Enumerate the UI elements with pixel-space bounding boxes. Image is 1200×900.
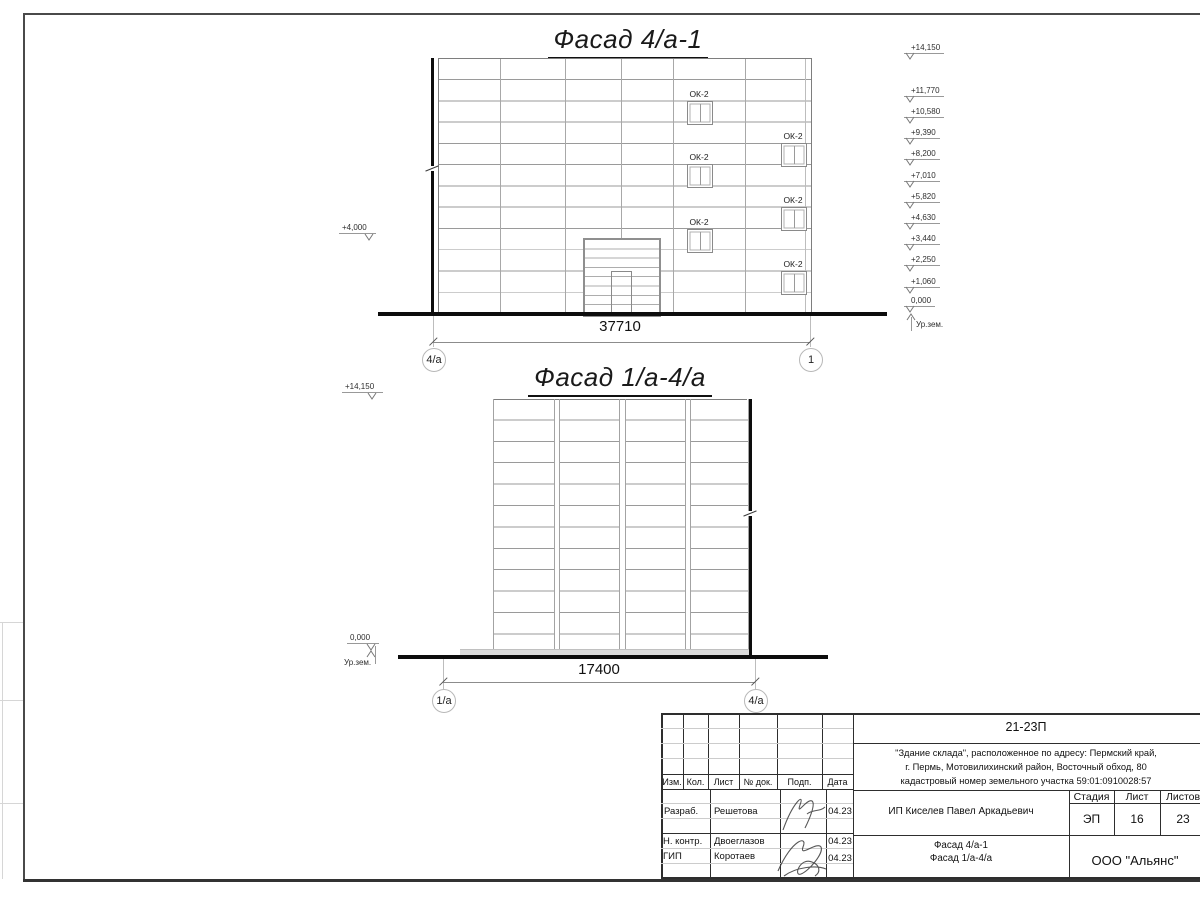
- facade1-title-text: Фасад 4/а-1: [548, 24, 709, 59]
- elevation-text: +14,150: [342, 382, 383, 393]
- sheets-label: Листов: [1160, 791, 1200, 803]
- elevation-mark: +5,820: [904, 192, 940, 203]
- row-role: Н. контр.: [663, 836, 702, 847]
- facade2-panel-bay: [493, 399, 555, 656]
- company-name: ООО "Альянс": [1070, 853, 1200, 868]
- window-ok2: [687, 164, 713, 188]
- elevation-mark: +7,010: [904, 171, 940, 182]
- elevation-tick-icon: [905, 223, 915, 230]
- project-description: "Здание склада", расположенное по адресу…: [856, 746, 1196, 788]
- margin-stamp-line: [0, 622, 23, 623]
- ground-bracket-line: [911, 317, 912, 331]
- break-symbol: [744, 511, 756, 516]
- elevation-mark: +4,630: [904, 213, 940, 224]
- facade1-dimension: 37710: [520, 318, 720, 335]
- facade2-panel-bay: [625, 399, 686, 656]
- facade1-column-joint: [565, 59, 566, 313]
- row-role: Разраб.: [664, 806, 698, 817]
- col-doc: № док.: [739, 777, 777, 787]
- facade2-axis-line: [749, 399, 753, 656]
- signature-razrab: [779, 792, 827, 834]
- window-ok2: [687, 229, 713, 253]
- facade2-elevation-zero: 0,000: [347, 633, 379, 644]
- dimension-line: [443, 682, 755, 683]
- margin-stamp-line: [0, 700, 23, 701]
- window-ok2: [781, 143, 807, 167]
- facade2-ground-label: Ур.зем.: [344, 658, 371, 667]
- row-date: 04.23: [827, 853, 853, 864]
- facade2-elevation-top: +14,150: [342, 382, 383, 393]
- titleblock-thin-line: [661, 743, 853, 744]
- facade1-title: Фасад 4/а-1: [478, 24, 778, 59]
- row-name: Двоеглазов: [714, 836, 765, 847]
- facade2-panel-bay: [690, 399, 749, 656]
- row-date: 04.23: [827, 806, 853, 817]
- elevation-mark: +1,060: [904, 277, 940, 288]
- sheet-title: Фасад 4/а-1 Фасад 1/а-4/а: [856, 839, 1066, 865]
- elevation-mark: +3,440: [904, 234, 940, 245]
- titleblock-line: [853, 743, 1200, 744]
- window-ok2: [781, 207, 807, 231]
- elevation-tick-icon: [905, 181, 915, 188]
- window-ok2: [781, 271, 807, 295]
- col-data: Дата: [822, 777, 853, 787]
- elevation-tick-icon: [905, 96, 915, 103]
- facade2-panel-bay: [559, 399, 620, 656]
- dimension-line: [433, 342, 810, 343]
- sheet-label: Лист: [1114, 791, 1160, 803]
- doc-code: 21-23П: [856, 720, 1196, 734]
- elevation-tick-icon: [905, 287, 915, 294]
- ground-bracket-line: [375, 646, 376, 664]
- facade2-ground-line: [398, 655, 828, 659]
- col-list: Лист: [708, 777, 739, 787]
- row-name: Коротаев: [714, 851, 755, 862]
- project-line: г. Пермь, Мотовилихинский район, Восточн…: [856, 760, 1196, 774]
- elevation-mark-4000: +4,000: [339, 223, 376, 234]
- elevation-tick-icon: [905, 244, 915, 251]
- elevation-tick-icon: [905, 306, 915, 313]
- window-label: ОК-2: [681, 217, 717, 227]
- elevation-tick-icon: [905, 117, 915, 124]
- elevation-tick-icon: [905, 53, 915, 60]
- window-label: ОК-2: [681, 152, 717, 162]
- extension-line: [755, 659, 756, 689]
- sheet-title-line: Фасад 4/а-1: [856, 839, 1066, 852]
- axis-bubble-4a: 4/а: [422, 348, 446, 372]
- frame-bottom-line: [23, 879, 1200, 882]
- row-date: 04.23: [827, 836, 853, 847]
- elevation-mark: +11,770: [904, 86, 944, 97]
- axis-bubble-1: 1: [799, 348, 823, 372]
- facade2-title-text: Фасад 1/а-4/а: [528, 362, 712, 397]
- titleblock-line: [661, 774, 853, 775]
- titleblock-thin-line: [661, 758, 853, 759]
- window-label: ОК-2: [775, 131, 811, 141]
- elevation-mark: +14,150: [904, 43, 944, 54]
- elevation-mark: +2,250: [904, 255, 940, 266]
- wicket-door: [611, 271, 632, 315]
- elevation-tick-icon: [364, 234, 374, 241]
- elevation-mark: +9,390: [904, 128, 940, 139]
- elevation-tick-icon: [905, 265, 915, 272]
- frame-left-line: [23, 13, 25, 881]
- sheets-value: 23: [1160, 812, 1200, 826]
- elevation-text: +4,000: [339, 223, 376, 234]
- axis-bubble-1a: 1/а: [432, 689, 456, 713]
- margin-stamp-line: [0, 803, 23, 804]
- elevation-mark: 0,000: [904, 296, 935, 307]
- extension-line: [443, 659, 444, 689]
- project-line: кадастровый номер земельного участка 59:…: [856, 774, 1196, 788]
- facade1-axis-line: [431, 58, 435, 314]
- titleblock-thin-line: [661, 728, 853, 729]
- axis-bubble-4a: 4/а: [744, 689, 768, 713]
- elevation-mark: +8,200: [904, 149, 940, 160]
- elevation-tick-icon: [905, 159, 915, 166]
- facade2-title: Фасад 1/а-4/а: [470, 362, 770, 397]
- stage-value: ЭП: [1069, 812, 1114, 826]
- client-name: ИП Киселев Павел Аркадьевич: [856, 806, 1066, 817]
- frame-top-line: [23, 13, 1200, 15]
- signature-nkontr-gip: [772, 833, 830, 878]
- margin-stamp-line: [2, 622, 3, 879]
- sheet-title-line: Фасад 1/а-4/а: [856, 852, 1066, 865]
- window-label: ОК-2: [681, 89, 717, 99]
- window-label: ОК-2: [775, 195, 811, 205]
- elevation-text: 0,000: [347, 633, 379, 644]
- break-symbol: [426, 166, 438, 171]
- drawing-sheet: Фасад 4/а-1 37710 4/а 1 +4,000 +14,150+1…: [0, 0, 1200, 900]
- titleblock-line: [853, 713, 854, 879]
- facade1-column-joint: [745, 59, 746, 313]
- row-name: Решетова: [714, 806, 758, 817]
- col-podp: Подп.: [777, 777, 822, 787]
- facade1-column-joint: [673, 59, 674, 313]
- elevation-tick-icon: [905, 202, 915, 209]
- facade2-dimension: 17400: [499, 661, 699, 678]
- project-line: "Здание склада", расположенное по адресу…: [856, 746, 1196, 760]
- ground-level-label: Ур.зем.: [916, 320, 943, 329]
- sheet-value: 16: [1114, 812, 1160, 826]
- stage-label: Стадия: [1069, 791, 1114, 803]
- row-role: ГИП: [663, 851, 682, 862]
- elevation-tick-icon: [905, 138, 915, 145]
- titleblock-line: [661, 789, 853, 790]
- elevation-mark: +10,580: [904, 107, 944, 118]
- window-label: ОК-2: [775, 259, 811, 269]
- titleblock-line: [1069, 803, 1200, 804]
- facade1-column-joint: [500, 59, 501, 313]
- window-ok2: [687, 101, 713, 125]
- col-kol: Кол.: [683, 777, 708, 787]
- elevation-tick-icon: [367, 393, 377, 400]
- col-izm: Изм.: [661, 777, 683, 787]
- titleblock-line: [853, 835, 1200, 836]
- facade1-ground-line: [378, 312, 887, 316]
